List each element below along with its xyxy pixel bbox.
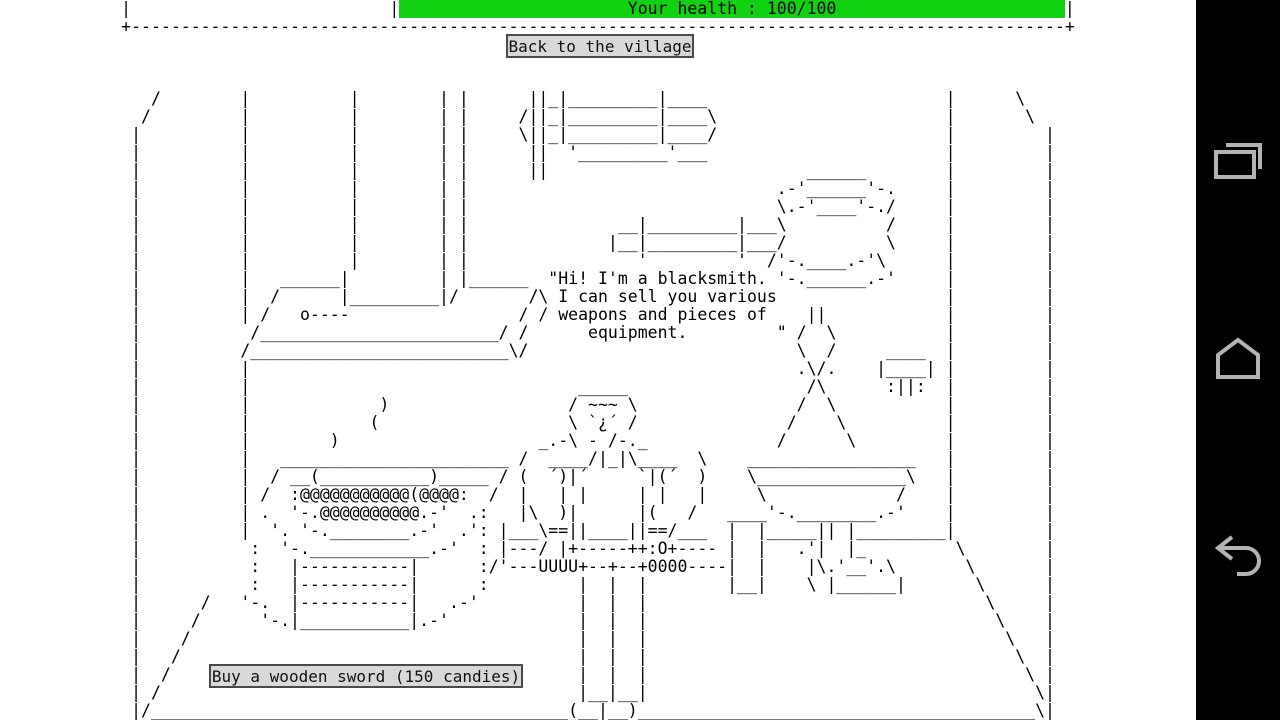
ascii-scene: | | Your health : 100/100 | +-----------… bbox=[121, 0, 1075, 720]
back-icon bbox=[1210, 532, 1266, 584]
game-page: | | Your health : 100/100 | +-----------… bbox=[0, 0, 1196, 720]
blacksmith-ascii-art: +---------------------------------------… bbox=[121, 17, 1075, 720]
recent-apps-button[interactable] bbox=[1210, 137, 1266, 185]
health-bar: Your health : 100/100 bbox=[399, 0, 1065, 18]
android-navigation-bar bbox=[1196, 0, 1280, 720]
back-to-village-button[interactable]: Back to the village bbox=[506, 34, 694, 58]
recent-apps-icon bbox=[1210, 139, 1266, 183]
health-row-right: | bbox=[1065, 0, 1075, 18]
back-nav-button[interactable] bbox=[1210, 532, 1266, 580]
buy-wooden-sword-button[interactable]: Buy a wooden sword (150 candies) bbox=[209, 664, 523, 688]
home-button[interactable] bbox=[1210, 333, 1266, 381]
home-icon bbox=[1210, 333, 1266, 381]
health-row-left: | | bbox=[121, 0, 399, 18]
